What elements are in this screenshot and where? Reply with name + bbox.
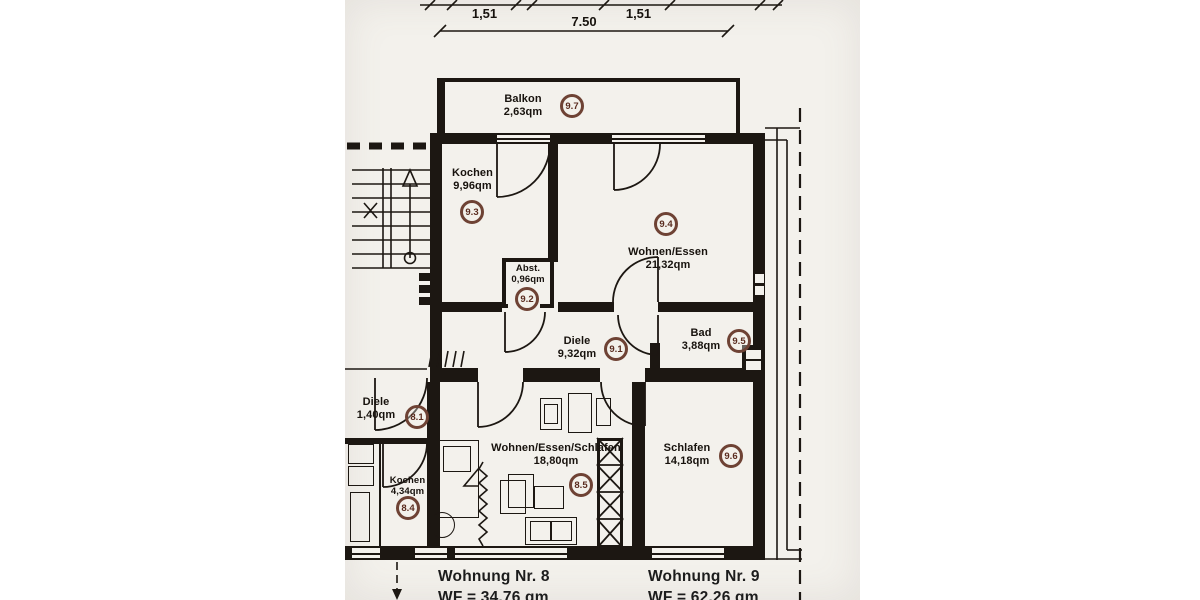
room-label-schlafen: Schlafen 14,18qm: [657, 442, 717, 467]
room-name: Diele: [363, 396, 390, 408]
bottom-dashed-arrow: [392, 562, 402, 600]
zigzag-partition: [479, 462, 487, 546]
dim-label-overall: 7.50: [556, 14, 612, 29]
room-area: 0,96qm: [511, 274, 544, 285]
room-ref-badge-9-6: 9.6: [719, 444, 743, 468]
right-boundary-lines: [765, 108, 802, 600]
room-ref-badge-8-1: 8.1: [405, 405, 429, 429]
wohnen-balcony-door: [614, 144, 660, 190]
apartment-8-wf: WF = 34,76 qm: [438, 589, 549, 600]
room-name: Abst.: [516, 263, 540, 274]
dim-label-left: 1,51: [462, 6, 507, 21]
staircase: [352, 168, 430, 268]
bed-fold: [464, 468, 479, 486]
room-label-diele8: Diele 1,40qm: [346, 396, 406, 421]
room-area: 2,63qm: [504, 106, 543, 118]
room-ref-badge-9-4: 9.4: [654, 212, 678, 236]
room-label-balkon: Balkon 2,63qm: [478, 93, 568, 118]
door-swings: [375, 144, 660, 487]
entry-step-ticks: [429, 351, 464, 367]
apartment-8-title: Wohnung Nr. 8: [438, 568, 550, 586]
room-label-wohnen-essen: Wohnen/Essen 21,32qm: [608, 246, 728, 271]
room-label-diele9: Diele 9,32qm: [547, 335, 607, 360]
room-area: 21,32qm: [646, 259, 691, 271]
room-area: 1,40qm: [357, 409, 396, 421]
room-ref-badge-9-2: 9.2: [515, 287, 539, 311]
landing-radiator: [419, 273, 430, 305]
room-area: 9,32qm: [558, 348, 597, 360]
room-label-bad: Bad 3,88qm: [676, 327, 726, 352]
room-label-kochen9: Kochen 9,96qm: [430, 167, 515, 192]
room-ref-badge-9-1: 9.1: [604, 337, 628, 361]
room-name: Kochen: [390, 475, 425, 486]
room-area: 18,80qm: [534, 455, 579, 467]
room-ref-badge-9-3: 9.3: [460, 200, 484, 224]
schlafen-door: [601, 382, 645, 426]
room-label-kochen8: Kochen 4,34qm: [380, 476, 435, 497]
room-name: Bad: [690, 327, 711, 339]
apartment-9-wf: WF = 62,26 qm: [648, 589, 759, 600]
room-ref-badge-8-4: 8.4: [396, 496, 420, 520]
room-label-abst: Abst. 0,96qm: [503, 264, 553, 285]
apartment-9-title: Wohnung Nr. 9: [648, 568, 760, 586]
wes8-door: [478, 382, 523, 427]
room-area: 3,88qm: [682, 340, 721, 352]
abst-door: [505, 312, 545, 352]
room-area: 9,96qm: [453, 180, 492, 192]
room-area: 4,34qm: [391, 486, 424, 497]
floorplan-canvas: 1,51 1,51 7.50 Balkon 2,63qm 9.7 Kochen …: [0, 0, 1200, 600]
room-name: Schlafen: [664, 442, 711, 454]
room-area: 14,18qm: [665, 455, 710, 467]
room-label-wohnen-essen-schlafen: Wohnen/Essen/Schlafen 18,80qm: [486, 442, 626, 467]
room-ref-badge-9-5: 9.5: [727, 329, 751, 353]
dim-label-right: 1,51: [616, 6, 661, 21]
room-name: Wohnen/Essen/Schlafen: [491, 442, 621, 454]
room-name: Kochen: [452, 167, 493, 179]
plan-linework: [0, 0, 1200, 600]
room-name: Balkon: [504, 93, 541, 105]
room-name: Wohnen/Essen: [628, 246, 708, 258]
room-ref-badge-9-7: 9.7: [560, 94, 584, 118]
room-name: Diele: [564, 335, 591, 347]
room-ref-badge-8-5: 8.5: [569, 473, 593, 497]
